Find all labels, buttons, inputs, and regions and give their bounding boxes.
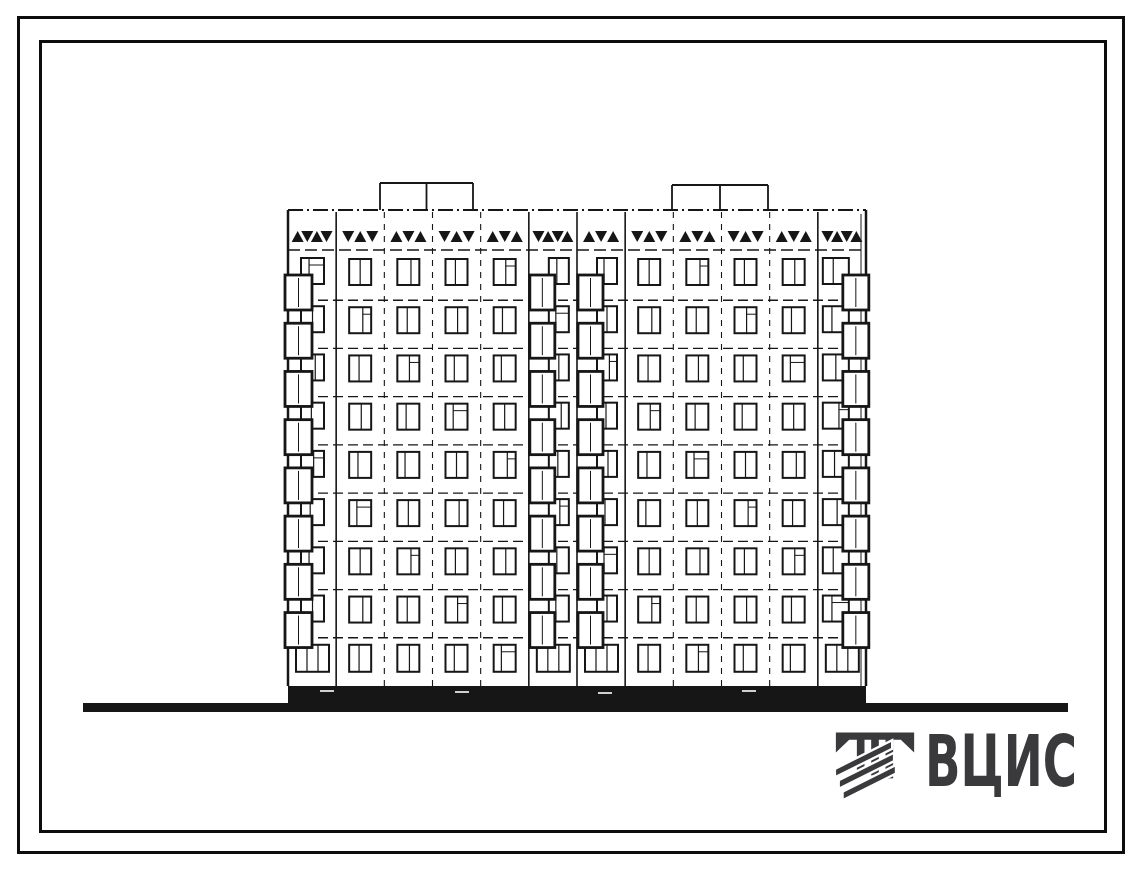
scanned-drawing-page: ВЦИС	[0, 0, 1139, 869]
building-plinth	[288, 686, 915, 712]
roof-structures	[380, 183, 768, 210]
logo-text-svg: ВЦИС	[923, 722, 1085, 802]
vcis-logo: ВЦИС	[833, 722, 1085, 804]
logo-text: ВЦИС	[925, 722, 1077, 802]
vcis-monogram-icon	[833, 726, 917, 804]
